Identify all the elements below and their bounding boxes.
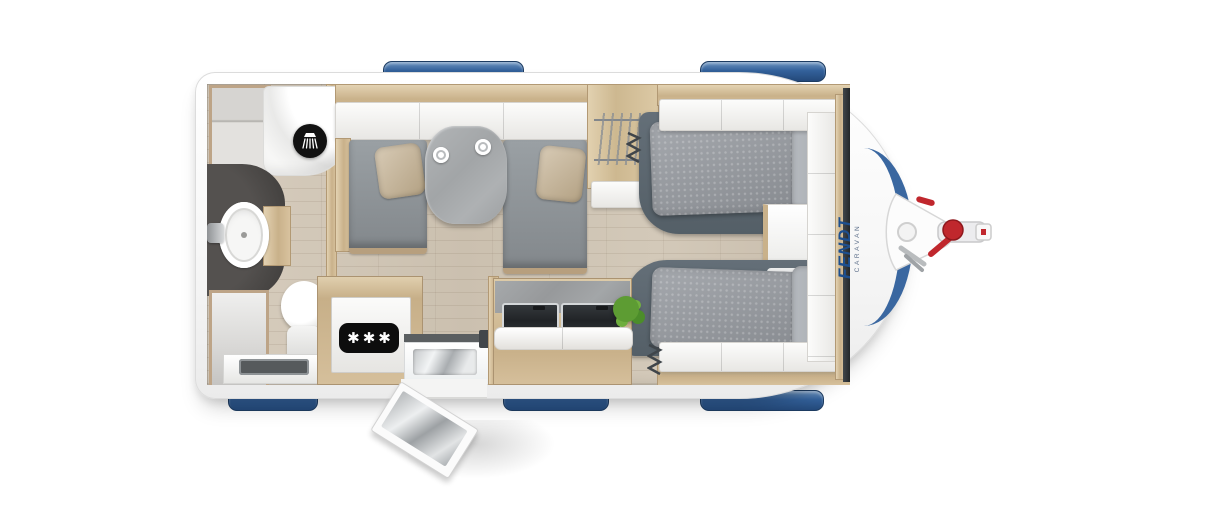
wardrobe-drawer (591, 181, 645, 208)
shower-head-icon (293, 124, 327, 158)
cup-right (475, 139, 491, 155)
basin-faucet (207, 223, 224, 243)
shower-glyph (298, 129, 322, 153)
washbasin (219, 202, 269, 268)
cushion-right (535, 145, 586, 204)
drawbar-hitch (870, 186, 996, 282)
interior-floor: ✱✱✱ (207, 84, 850, 385)
caravan-floorplan: ✱✱✱ FENDT CARAVAN (0, 0, 1217, 525)
entry-door-panel (381, 391, 468, 467)
bed-ladder-top-icon (626, 132, 642, 169)
freezer-stars-badge: ✱✱✱ (339, 323, 399, 353)
kitchen-block (493, 278, 632, 385)
front-wall-lockers (807, 112, 837, 362)
bathroom-cabinet-top (209, 85, 271, 174)
hitch-graphic (870, 186, 996, 282)
cushion-left (374, 142, 427, 200)
bed-ladder-bottom-icon (647, 344, 663, 381)
brand-tagline: CARAVAN (855, 200, 862, 296)
bathroom-sink-inset (239, 359, 309, 375)
green-plant (613, 296, 639, 322)
kitchen-front-edge (494, 327, 633, 350)
dining-table (425, 126, 507, 224)
brand-logo: FENDT CARAVAN (836, 200, 868, 296)
cup-left (433, 147, 449, 163)
brand-name: FENDT (836, 200, 853, 296)
sink-basin (413, 349, 477, 375)
